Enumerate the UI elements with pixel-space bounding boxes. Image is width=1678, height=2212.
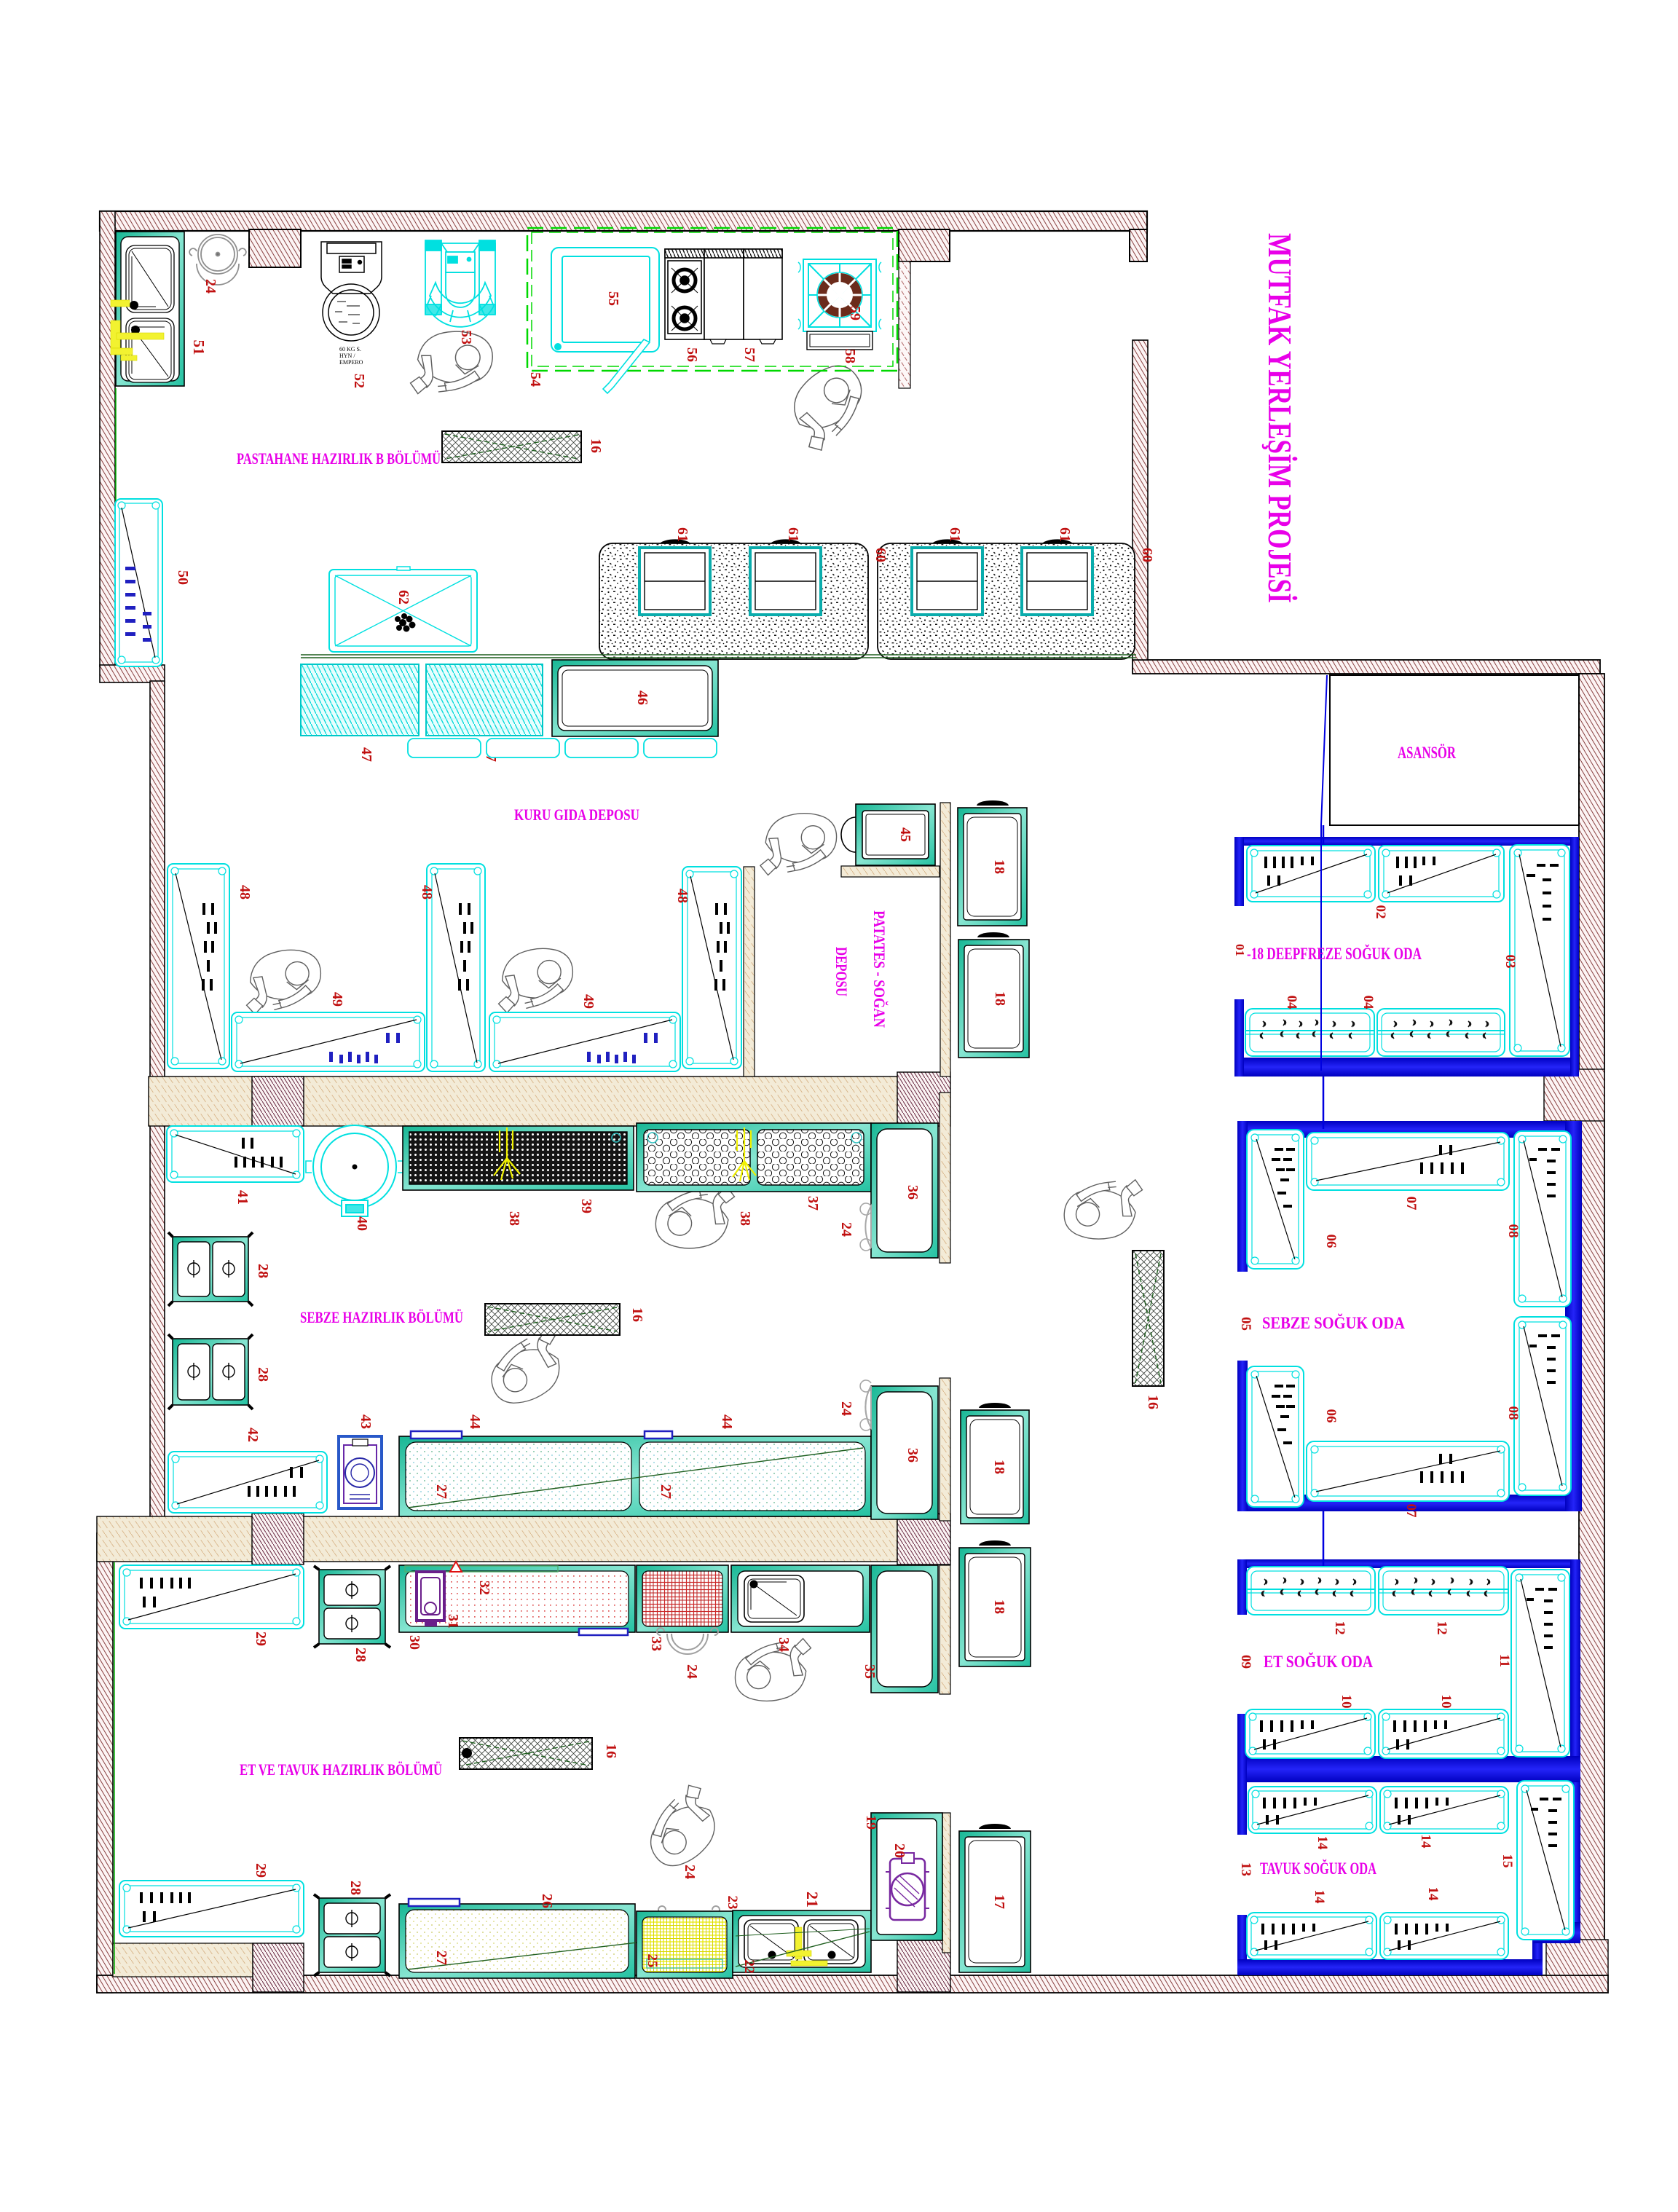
svg-text:18: 18: [992, 991, 1008, 1006]
svg-text:29: 29: [253, 1632, 269, 1646]
svg-text:48: 48: [419, 885, 435, 900]
svg-text:41: 41: [235, 1190, 251, 1205]
svg-text:28: 28: [255, 1264, 271, 1278]
svg-text:05: 05: [1238, 1317, 1253, 1331]
svg-text:47: 47: [358, 747, 374, 762]
svg-text:27: 27: [658, 1484, 674, 1499]
svg-text:16: 16: [629, 1307, 645, 1322]
svg-text:-18 DEEPFREZE SOĞUK ODA: -18 DEEPFREZE SOĞUK ODA: [1247, 944, 1422, 963]
svg-text:10: 10: [1339, 1695, 1354, 1709]
svg-text:DEPOSU: DEPOSU: [832, 947, 851, 996]
svg-text:60: 60: [873, 548, 889, 562]
svg-text:24: 24: [684, 1664, 700, 1679]
svg-text:42: 42: [245, 1428, 261, 1442]
svg-text:26: 26: [539, 1894, 555, 1908]
svg-text:44: 44: [719, 1414, 735, 1429]
svg-text:43: 43: [358, 1414, 374, 1429]
svg-text:29: 29: [253, 1863, 269, 1878]
svg-text:58: 58: [842, 349, 858, 363]
svg-text:16: 16: [603, 1744, 619, 1758]
svg-text:52: 52: [351, 374, 367, 388]
svg-text:18: 18: [991, 859, 1007, 874]
svg-text:04: 04: [1360, 996, 1376, 1010]
svg-text:24: 24: [682, 1865, 698, 1879]
svg-text:02: 02: [1373, 905, 1388, 919]
svg-text:07: 07: [1403, 1504, 1419, 1519]
svg-text:62: 62: [395, 590, 411, 605]
svg-text:59: 59: [847, 306, 863, 320]
svg-text:12: 12: [1332, 1621, 1347, 1635]
svg-text:61: 61: [1057, 527, 1073, 542]
svg-text:03: 03: [1502, 955, 1518, 969]
svg-text:61: 61: [674, 527, 690, 542]
svg-text:28: 28: [347, 1881, 363, 1895]
svg-text:61: 61: [947, 527, 963, 542]
svg-text:01: 01: [1233, 944, 1247, 956]
svg-text:14: 14: [1425, 1887, 1441, 1902]
svg-text:18: 18: [991, 1460, 1007, 1474]
svg-text:08: 08: [1505, 1406, 1521, 1420]
svg-text:HYN /: HYN /: [339, 353, 355, 359]
svg-text:08: 08: [1505, 1224, 1521, 1238]
svg-text:27: 27: [433, 1484, 449, 1499]
svg-text:21: 21: [803, 1892, 822, 1908]
svg-text:MUTFAK YERLEŞİM PROJESİ: MUTFAK YERLEŞİM PROJESİ: [1261, 233, 1299, 603]
svg-text:09: 09: [1238, 1655, 1253, 1669]
svg-text:49: 49: [329, 992, 345, 1007]
svg-text:ET SOĞUK ODA: ET SOĞUK ODA: [1264, 1652, 1373, 1671]
svg-text:31: 31: [445, 1614, 461, 1629]
svg-text:19: 19: [863, 1815, 879, 1830]
svg-text:06: 06: [1323, 1409, 1339, 1423]
svg-text:53: 53: [458, 330, 474, 345]
svg-text:ET VE TAVUK HAZIRLIK BÖLÜMÜ: ET VE TAVUK HAZIRLIK BÖLÜMÜ: [240, 1760, 442, 1779]
svg-text:40: 40: [354, 1216, 370, 1231]
svg-text:60 KG S.: 60 KG S.: [339, 346, 361, 353]
svg-text:SEBZE HAZIRLIK BÖLÜMÜ: SEBZE HAZIRLIK BÖLÜMÜ: [300, 1308, 463, 1326]
svg-text:44: 44: [467, 1414, 483, 1429]
svg-text:25: 25: [645, 1954, 660, 1968]
svg-text:24: 24: [838, 1222, 854, 1237]
svg-text:04: 04: [1284, 996, 1299, 1010]
svg-text:TAVUK SOĞUK ODA: TAVUK SOĞUK ODA: [1260, 1859, 1376, 1878]
svg-text:14: 14: [1312, 1890, 1327, 1905]
svg-text:34: 34: [776, 1637, 792, 1652]
svg-text:14: 14: [1418, 1835, 1433, 1849]
svg-text:36: 36: [905, 1185, 921, 1200]
svg-text:22: 22: [741, 1960, 757, 1974]
svg-text:EMPERO: EMPERO: [339, 359, 363, 366]
svg-text:51: 51: [190, 340, 208, 355]
svg-text:32: 32: [476, 1581, 492, 1595]
svg-text:14: 14: [1315, 1836, 1330, 1851]
svg-text:23: 23: [725, 1896, 740, 1910]
svg-text:17: 17: [991, 1894, 1007, 1909]
svg-text:48: 48: [237, 885, 253, 900]
svg-text:54: 54: [527, 372, 543, 387]
svg-text:46: 46: [634, 690, 650, 705]
svg-text:39: 39: [578, 1199, 594, 1213]
svg-text:35: 35: [862, 1664, 878, 1679]
svg-text:45: 45: [897, 827, 913, 842]
svg-text:57: 57: [741, 347, 757, 362]
svg-text:10: 10: [1438, 1695, 1454, 1709]
svg-text:30: 30: [406, 1635, 422, 1650]
svg-text:ASANSÖR: ASANSÖR: [1398, 744, 1456, 762]
svg-text:PASTAHANE HAZIRLIK B BÖLÜMÜ: PASTAHANE HAZIRLIK B BÖLÜMÜ: [237, 449, 441, 468]
svg-text:12: 12: [1434, 1621, 1449, 1635]
svg-text:20: 20: [891, 1843, 907, 1858]
svg-text:61: 61: [785, 527, 801, 542]
svg-text:07: 07: [1403, 1197, 1419, 1211]
svg-text:60: 60: [1139, 548, 1155, 562]
svg-text:KURU GIDA DEPOSU: KURU GIDA DEPOSU: [514, 806, 639, 824]
svg-text:16: 16: [1145, 1395, 1161, 1409]
svg-text:PATATES - SOĞAN: PATATES - SOĞAN: [870, 910, 889, 1028]
svg-text:33: 33: [648, 1637, 664, 1651]
svg-text:28: 28: [255, 1367, 271, 1382]
svg-text:27: 27: [433, 1951, 449, 1965]
svg-text:48: 48: [674, 889, 690, 903]
svg-text:38: 38: [737, 1211, 753, 1226]
svg-text:24: 24: [838, 1401, 854, 1416]
svg-text:24: 24: [202, 279, 218, 294]
svg-text:16: 16: [588, 438, 604, 453]
svg-text:11: 11: [1497, 1654, 1512, 1667]
svg-text:28: 28: [352, 1648, 369, 1662]
svg-text:18: 18: [991, 1599, 1007, 1614]
svg-text:13: 13: [1238, 1862, 1253, 1876]
svg-text:56: 56: [684, 347, 700, 362]
svg-text:06: 06: [1323, 1235, 1339, 1248]
svg-text:49: 49: [580, 994, 596, 1009]
svg-text:38: 38: [506, 1211, 522, 1226]
svg-text:36: 36: [905, 1448, 921, 1463]
svg-text:50: 50: [175, 570, 191, 585]
svg-text:SEBZE SOĞUK ODA: SEBZE SOĞUK ODA: [1262, 1313, 1405, 1332]
svg-text:15: 15: [1500, 1854, 1515, 1868]
svg-text:55: 55: [605, 291, 621, 306]
svg-text:37: 37: [805, 1196, 821, 1211]
